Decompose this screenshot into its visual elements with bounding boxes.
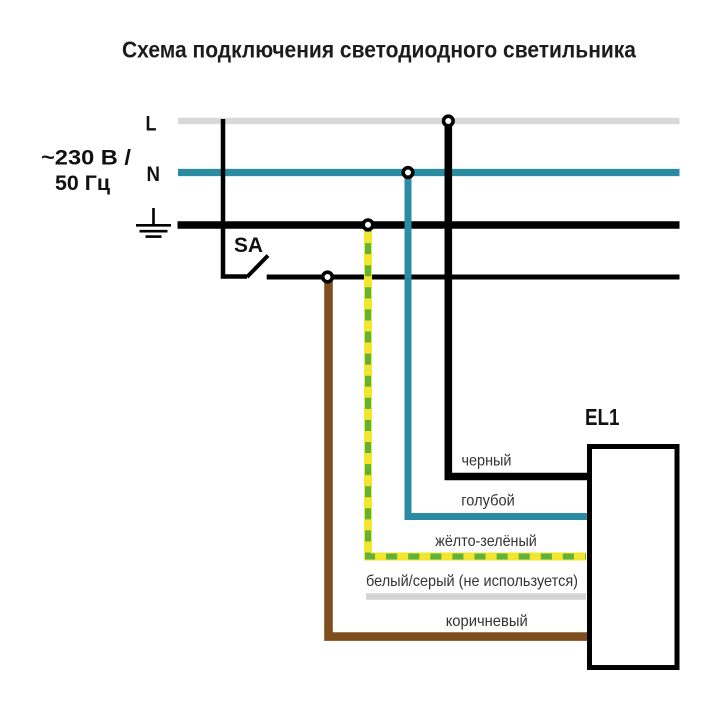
svg-text:~230 В /: ~230 В / — [41, 146, 131, 169]
svg-text:жёлто-зелёный: жёлто-зелёный — [435, 533, 537, 550]
svg-text:L: L — [146, 112, 157, 135]
svg-text:черный: черный — [462, 453, 512, 470]
svg-text:50 Гц: 50 Гц — [55, 172, 110, 195]
svg-text:SA: SA — [234, 234, 263, 257]
svg-text:EL1: EL1 — [585, 404, 620, 430]
svg-text:N: N — [147, 163, 161, 186]
svg-text:голубой: голубой — [461, 493, 515, 510]
svg-text:белый/серый (не используется): белый/серый (не используется) — [366, 573, 578, 590]
svg-text:Схема подключения светодиодног: Схема подключения светодиодного светильн… — [122, 37, 637, 63]
svg-text:коричневый: коричневый — [446, 613, 528, 630]
